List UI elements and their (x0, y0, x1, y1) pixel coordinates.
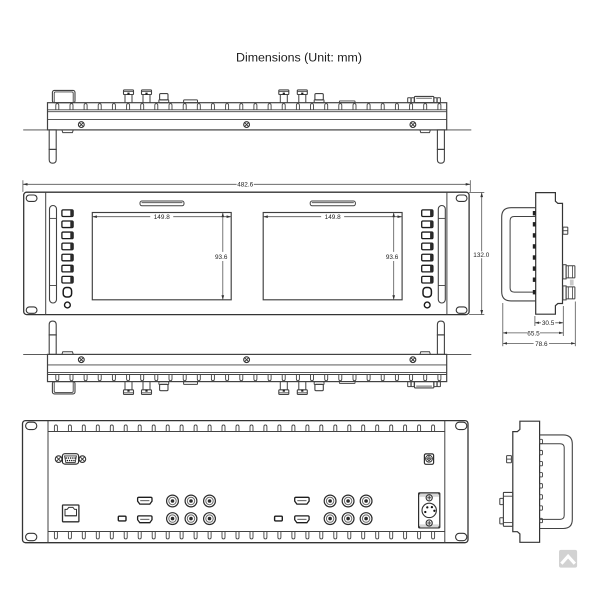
svg-text:93.6: 93.6 (215, 254, 228, 261)
svg-text:78.6: 78.6 (535, 341, 548, 348)
svg-text:93.6: 93.6 (386, 254, 399, 261)
svg-text:Dimensions (Unit: mm): Dimensions (Unit: mm) (236, 51, 362, 65)
svg-text:30.5: 30.5 (542, 320, 555, 327)
svg-text:149.8: 149.8 (325, 214, 341, 221)
svg-text:132.0: 132.0 (473, 252, 489, 259)
svg-text:65.5: 65.5 (527, 330, 540, 337)
svg-text:482.6: 482.6 (237, 182, 253, 189)
svg-text:149.8: 149.8 (154, 214, 170, 221)
